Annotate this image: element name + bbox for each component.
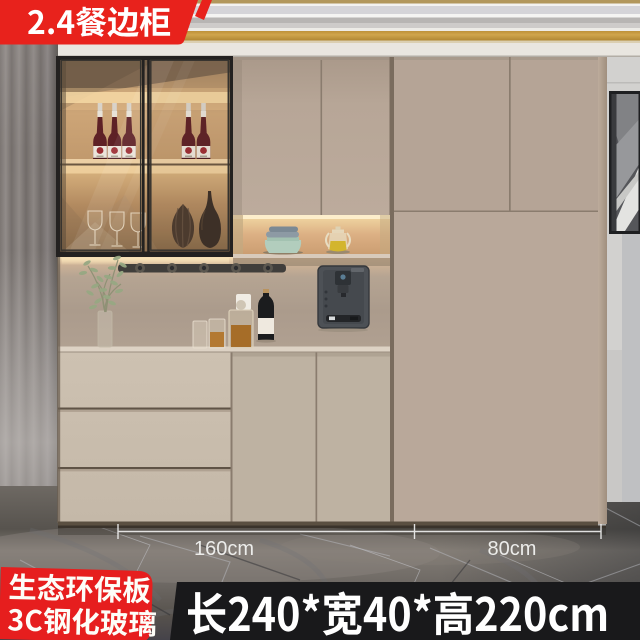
svg-text:160cm: 160cm: [194, 538, 254, 560]
svg-text:80cm: 80cm: [488, 538, 537, 560]
